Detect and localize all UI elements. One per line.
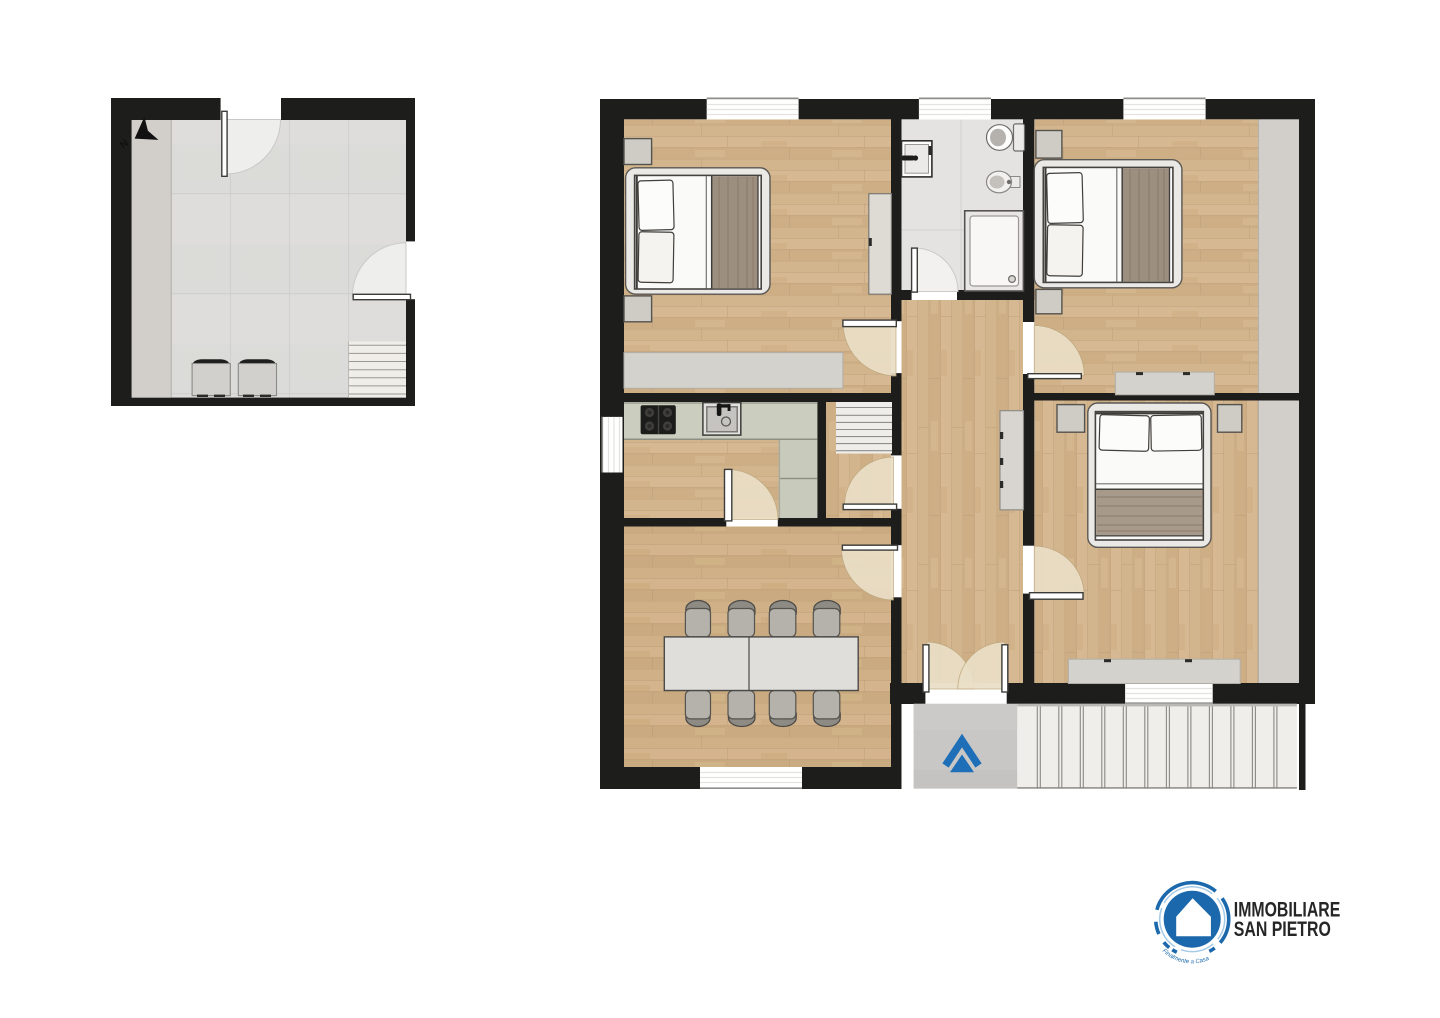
svg-text:SAN PIETRO: SAN PIETRO xyxy=(1234,917,1331,941)
